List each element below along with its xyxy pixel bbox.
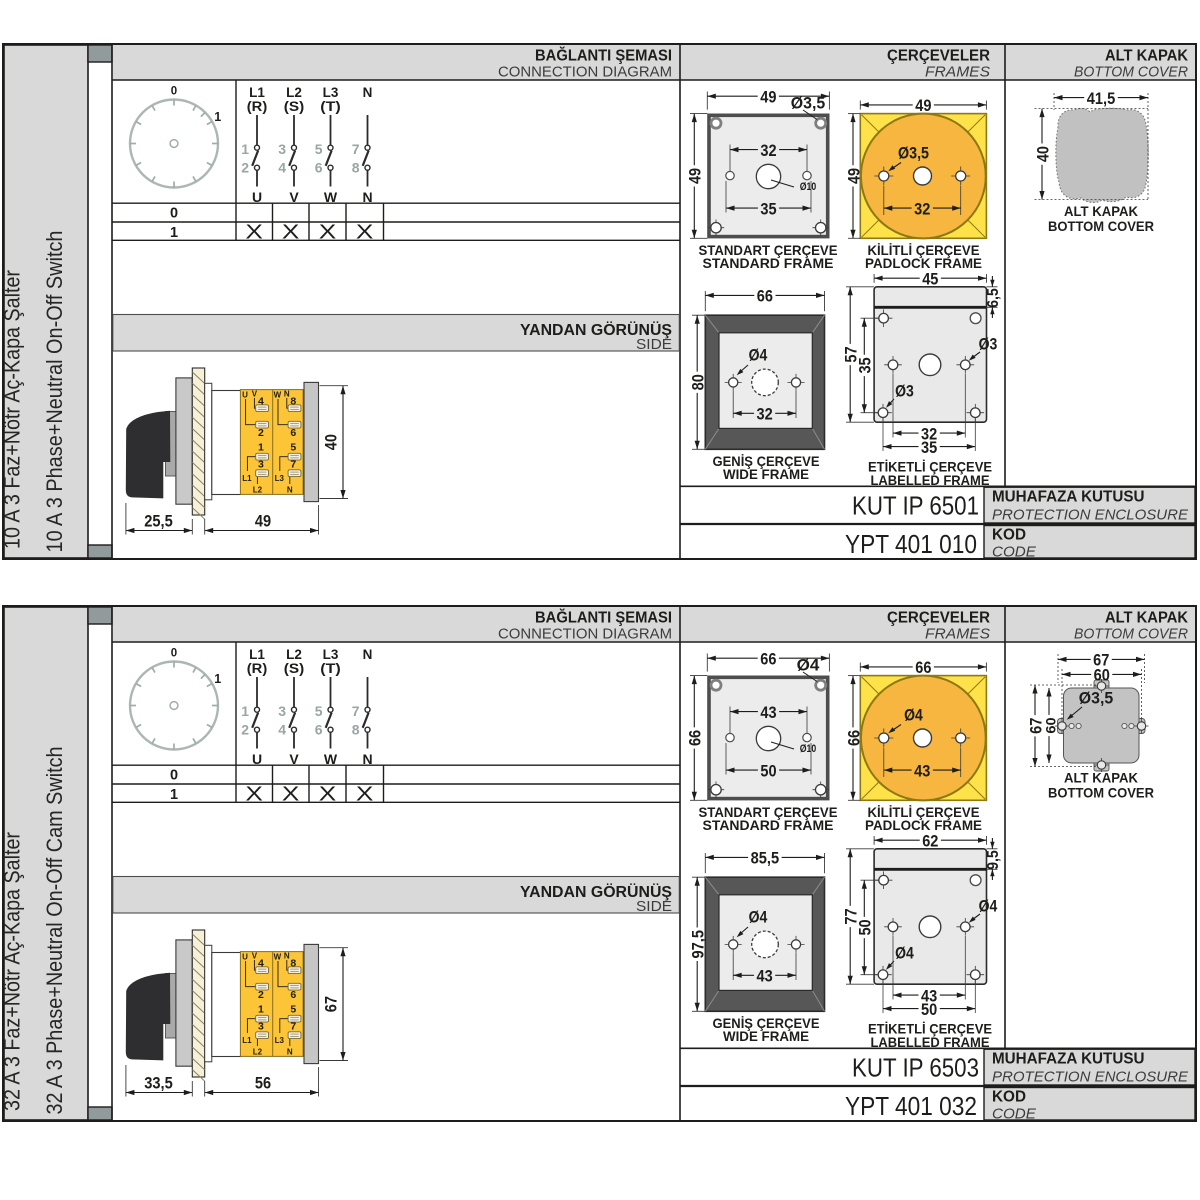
svg-text:L2: L2 (253, 1048, 263, 1057)
svg-text:L1: L1 (249, 85, 265, 100)
svg-text:1: 1 (258, 1004, 264, 1016)
svg-text:49: 49 (255, 512, 271, 531)
svg-text:(R): (R) (247, 99, 268, 114)
svg-text:BOTTOM COVER: BOTTOM COVER (1074, 626, 1188, 643)
svg-text:97,5: 97,5 (689, 930, 708, 959)
svg-text:L1: L1 (242, 1036, 252, 1045)
svg-text:0: 0 (170, 768, 178, 784)
svg-text:X: X (356, 784, 374, 806)
svg-text:6: 6 (315, 721, 323, 737)
svg-text:Ø10: Ø10 (800, 181, 817, 193)
svg-text:X: X (319, 222, 337, 244)
svg-text:ALT KAPAK: ALT KAPAK (1105, 48, 1189, 65)
svg-text:WIDE FRAME: WIDE FRAME (723, 1028, 809, 1044)
svg-text:1: 1 (214, 110, 221, 124)
svg-text:STANDARD FRAME: STANDARD FRAME (703, 255, 834, 271)
svg-text:43: 43 (757, 967, 773, 986)
svg-text:U: U (242, 953, 248, 962)
svg-text:L3: L3 (323, 647, 339, 662)
svg-text:5: 5 (315, 703, 323, 719)
svg-text:2: 2 (241, 159, 249, 175)
svg-text:ÇERÇEVELER: ÇERÇEVELER (887, 610, 991, 627)
svg-text:L2: L2 (253, 486, 263, 495)
svg-text:KOD: KOD (992, 527, 1026, 544)
svg-text:1: 1 (214, 672, 221, 686)
svg-text:32 A 3 Phase+Neutral On-Off Ca: 32 A 3 Phase+Neutral On-Off Cam Switch (42, 747, 67, 1115)
svg-text:10 A 3 Phase+Neutral On-Off Sw: 10 A 3 Phase+Neutral On-Off Switch (42, 231, 67, 553)
svg-text:L2: L2 (286, 85, 302, 100)
svg-text:N: N (287, 1048, 293, 1057)
svg-text:45: 45 (922, 270, 938, 289)
svg-text:0: 0 (171, 648, 177, 660)
svg-text:50: 50 (760, 761, 776, 780)
svg-text:1: 1 (241, 703, 249, 719)
svg-text:43: 43 (914, 761, 930, 780)
svg-text:X: X (282, 222, 300, 244)
svg-text:WIDE FRAME: WIDE FRAME (723, 466, 809, 482)
svg-text:N: N (284, 390, 290, 399)
svg-text:66: 66 (915, 658, 931, 677)
svg-text:8: 8 (352, 159, 360, 175)
svg-text:35: 35 (760, 199, 776, 218)
svg-text:Ø4: Ø4 (895, 944, 914, 963)
svg-text:6: 6 (315, 159, 323, 175)
svg-text:Ø3,5: Ø3,5 (898, 144, 929, 163)
svg-text:49: 49 (844, 168, 863, 184)
svg-text:0: 0 (171, 86, 177, 98)
svg-text:49: 49 (915, 96, 931, 115)
svg-text:W: W (274, 953, 282, 962)
svg-text:PROTECTION ENCLOSURE: PROTECTION ENCLOSURE (992, 1069, 1189, 1086)
svg-text:25,5: 25,5 (144, 512, 173, 531)
svg-text:MUHAFAZA KUTUSU: MUHAFAZA KUTUSU (992, 1051, 1145, 1068)
svg-text:W: W (274, 391, 282, 400)
svg-text:ALT KAPAK: ALT KAPAK (1064, 203, 1138, 219)
svg-text:(T): (T) (320, 99, 341, 114)
svg-text:L3: L3 (275, 1036, 285, 1045)
svg-text:1: 1 (241, 141, 249, 157)
svg-text:KUT IP 6501: KUT IP 6501 (852, 491, 979, 521)
svg-text:(S): (S) (284, 661, 305, 676)
svg-text:FRAMES: FRAMES (925, 626, 990, 643)
svg-text:6: 6 (290, 427, 296, 439)
svg-text:56: 56 (255, 1074, 271, 1093)
svg-text:X: X (319, 784, 337, 806)
svg-text:60: 60 (1042, 717, 1058, 733)
svg-text:SIDE: SIDE (636, 336, 672, 353)
svg-text:BAĞLANTI ŞEMASI: BAĞLANTI ŞEMASI (535, 46, 672, 65)
svg-text:X: X (356, 222, 374, 244)
svg-text:Ø3,5: Ø3,5 (1079, 689, 1113, 708)
svg-text:CONNECTION DIAGRAM: CONNECTION DIAGRAM (498, 64, 672, 81)
svg-text:2: 2 (258, 427, 264, 439)
svg-text:6: 6 (290, 989, 296, 1001)
svg-text:N: N (284, 952, 290, 961)
svg-text:L2: L2 (286, 647, 302, 662)
svg-text:(S): (S) (284, 99, 305, 114)
svg-text:3: 3 (278, 703, 286, 719)
svg-text:L1: L1 (249, 647, 265, 662)
svg-text:85,5: 85,5 (751, 849, 780, 868)
svg-text:YPT 401 032: YPT 401 032 (845, 1091, 977, 1121)
svg-text:X: X (245, 222, 263, 244)
svg-text:40: 40 (322, 434, 341, 450)
svg-text:32 A 3 Faz+Nötr Aç-Kapa Şalter: 32 A 3 Faz+Nötr Aç-Kapa Şalter (0, 832, 25, 1111)
svg-text:32: 32 (757, 405, 773, 424)
svg-text:5: 5 (290, 1004, 296, 1016)
svg-text:YPT 401 010: YPT 401 010 (845, 529, 977, 559)
svg-text:50: 50 (921, 1000, 937, 1019)
svg-text:Ø10: Ø10 (800, 743, 817, 755)
svg-text:67: 67 (322, 996, 341, 1012)
svg-text:CODE: CODE (992, 1106, 1037, 1123)
svg-text:43: 43 (760, 703, 776, 722)
svg-text:2: 2 (258, 989, 264, 1001)
svg-text:41,5: 41,5 (1087, 89, 1116, 108)
svg-text:4: 4 (278, 721, 286, 737)
svg-text:62: 62 (922, 832, 938, 851)
svg-text:L3: L3 (323, 85, 339, 100)
svg-text:Ø3: Ø3 (895, 382, 914, 401)
svg-text:SIDE: SIDE (636, 898, 672, 915)
svg-text:32: 32 (914, 199, 930, 218)
svg-text:6,5: 6,5 (985, 288, 1002, 308)
svg-text:1: 1 (258, 442, 264, 454)
svg-text:L3: L3 (275, 474, 285, 483)
svg-text:10 A 3 Faz+Nötr Aç-Kapa Şalter: 10 A 3 Faz+Nötr Aç-Kapa Şalter (0, 270, 25, 549)
svg-text:MUHAFAZA KUTUSU: MUHAFAZA KUTUSU (992, 489, 1145, 506)
svg-text:50: 50 (856, 919, 875, 935)
svg-text:Ø4: Ø4 (979, 897, 998, 916)
svg-text:N: N (287, 486, 293, 495)
svg-text:V: V (252, 952, 258, 961)
svg-text:BOTTOM COVER: BOTTOM COVER (1048, 218, 1154, 234)
svg-text:40: 40 (1033, 146, 1052, 162)
svg-text:CONNECTION DIAGRAM: CONNECTION DIAGRAM (498, 626, 672, 643)
svg-text:N: N (363, 85, 373, 100)
svg-text:5: 5 (290, 442, 296, 454)
svg-text:7: 7 (352, 141, 360, 157)
svg-text:Ø4: Ø4 (749, 346, 768, 365)
svg-text:Ø3,5: Ø3,5 (791, 94, 825, 113)
svg-text:66: 66 (757, 287, 773, 306)
svg-text:5: 5 (315, 141, 323, 157)
svg-text:Ø4: Ø4 (797, 656, 820, 675)
svg-text:80: 80 (689, 374, 708, 390)
svg-text:BOTTOM COVER: BOTTOM COVER (1074, 64, 1188, 81)
svg-text:49: 49 (760, 88, 776, 107)
svg-text:33,5: 33,5 (144, 1074, 173, 1093)
svg-text:L1: L1 (242, 474, 252, 483)
svg-text:ALT KAPAK: ALT KAPAK (1105, 610, 1189, 627)
svg-text:FRAMES: FRAMES (925, 64, 990, 81)
svg-text:ALT KAPAK: ALT KAPAK (1064, 770, 1138, 786)
svg-text:ÇERÇEVELER: ÇERÇEVELER (887, 48, 991, 65)
svg-text:(T): (T) (320, 661, 341, 676)
svg-text:8: 8 (352, 721, 360, 737)
svg-text:CODE: CODE (992, 544, 1037, 561)
svg-text:KUT IP 6503: KUT IP 6503 (852, 1053, 979, 1083)
svg-text:49: 49 (686, 168, 705, 184)
svg-text:66: 66 (686, 730, 705, 746)
svg-text:N: N (363, 647, 373, 662)
svg-text:STANDARD FRAME: STANDARD FRAME (703, 817, 834, 833)
svg-text:7: 7 (352, 703, 360, 719)
svg-text:V: V (252, 390, 258, 399)
svg-text:1: 1 (170, 787, 178, 803)
svg-text:32: 32 (760, 141, 776, 160)
svg-text:BOTTOM COVER: BOTTOM COVER (1048, 785, 1154, 801)
svg-text:2: 2 (241, 721, 249, 737)
svg-text:PROTECTION ENCLOSURE: PROTECTION ENCLOSURE (992, 507, 1189, 524)
svg-text:4: 4 (278, 159, 286, 175)
svg-text:66: 66 (760, 650, 776, 669)
svg-text:0: 0 (170, 206, 178, 222)
svg-text:Ø3: Ø3 (979, 335, 998, 354)
svg-text:Ø4: Ø4 (904, 706, 923, 725)
svg-text:Ø4: Ø4 (749, 908, 768, 927)
svg-text:X: X (245, 784, 263, 806)
svg-text:66: 66 (844, 730, 863, 746)
svg-text:35: 35 (921, 438, 937, 457)
svg-text:BAĞLANTI ŞEMASI: BAĞLANTI ŞEMASI (535, 608, 672, 627)
svg-text:(R): (R) (247, 661, 268, 676)
svg-text:60: 60 (1094, 666, 1110, 685)
svg-text:1: 1 (170, 225, 178, 241)
svg-text:9,5: 9,5 (985, 850, 1002, 870)
svg-text:U: U (242, 391, 248, 400)
svg-text:3: 3 (278, 141, 286, 157)
svg-text:X: X (282, 784, 300, 806)
svg-text:35: 35 (856, 357, 875, 373)
svg-text:KOD: KOD (992, 1089, 1026, 1106)
